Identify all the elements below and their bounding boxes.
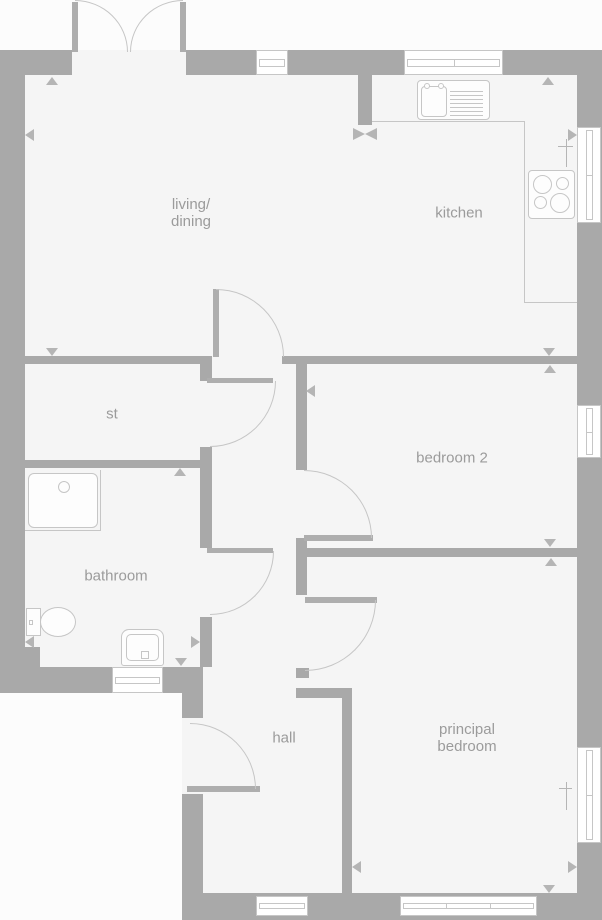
dimension-arrow-icon (544, 539, 556, 547)
wall-left (0, 50, 25, 693)
shower-screen (100, 470, 101, 531)
sink-drainer-lines (450, 91, 483, 116)
room-label-bathroom: bathroom (84, 568, 147, 585)
sink-tap (424, 83, 430, 89)
hob-burner (556, 177, 569, 190)
counter-edge (524, 121, 525, 303)
counter-edge (372, 121, 525, 122)
dimension-arrow-icon (306, 385, 315, 397)
window-icon (400, 896, 537, 916)
dimension-arrow-icon (542, 77, 554, 85)
wall-bottom (182, 893, 602, 920)
dimension-arrow-icon (543, 885, 555, 893)
dimension-arrow-icon (543, 348, 555, 356)
floorplan: living/ dining kitchen st bathroom bedro… (0, 0, 602, 920)
dimension-arrow-icon (174, 468, 186, 476)
toilet-bowl (40, 607, 76, 637)
dimension-arrow-icon (568, 129, 577, 141)
shower-drain (58, 481, 70, 493)
sink-bowl (421, 86, 447, 117)
room-label-st: st (106, 406, 118, 423)
room-label-hall: hall (272, 730, 295, 747)
label-line: bedroom (437, 738, 496, 755)
hob-burner (533, 175, 552, 194)
label-line: dining (171, 213, 211, 230)
hob-burner (550, 193, 570, 213)
dimension-arrow-icon (25, 636, 34, 648)
room-label-living-dining: living/ dining (171, 196, 211, 230)
dimension-arrow-icon (568, 861, 577, 873)
wall-principal-top (296, 688, 352, 698)
window-icon (256, 896, 308, 916)
toilet-button (29, 620, 33, 625)
wall-hallcol-left-c (200, 617, 212, 667)
wall-bedroom-divider (296, 548, 577, 557)
dimension-arrow-icon (352, 861, 361, 873)
window-icon (577, 405, 601, 458)
room-label-principal-bedroom: principal bedroom (437, 721, 496, 755)
tap-cross-icon (558, 139, 574, 169)
dimension-arrow-icon (46, 348, 58, 356)
door-swing-arc (130, 0, 183, 52)
wall-bedroom2-left-a (296, 364, 307, 470)
window-icon (112, 667, 163, 693)
window-icon (404, 50, 503, 75)
wall-bathroom-corner (25, 647, 40, 667)
wall-hallcol-left-b (200, 447, 212, 548)
dimension-arrow-icon (25, 129, 34, 141)
window-icon (577, 127, 601, 223)
dimension-arrow-icon (545, 558, 557, 566)
dimension-arrow-icon (191, 636, 200, 648)
window-icon (577, 747, 601, 843)
hob-burner (534, 196, 547, 209)
shower-screen (25, 530, 101, 531)
dimension-arrow-icon (46, 77, 58, 85)
label-line: principal (437, 721, 496, 738)
counter-edge (524, 302, 577, 303)
room-label-kitchen: kitchen (435, 205, 483, 222)
dimension-arrow-icon (365, 128, 377, 140)
wall-kitchen-bottom (282, 356, 577, 364)
room-label-bedroom2: bedroom 2 (416, 450, 488, 467)
wall-st-bottom (25, 460, 200, 468)
tap-cross-icon (558, 782, 574, 812)
outside-area (0, 693, 182, 920)
french-door-threshold (72, 50, 186, 75)
dimension-arrow-icon (353, 128, 365, 140)
sink-tap (438, 83, 444, 89)
wall-bedroom2-left-b (296, 538, 307, 595)
door-swing-arc (75, 0, 128, 52)
dimension-arrow-icon (544, 365, 556, 373)
wall-living-bottom (25, 356, 211, 364)
wall-kitchen-pillar (358, 75, 372, 125)
basin-tap (141, 651, 149, 659)
label-line: living/ (171, 196, 211, 213)
wall-bathroom-bottom (0, 667, 203, 693)
wall-principal-left (342, 698, 352, 893)
window-icon (256, 50, 288, 75)
dimension-arrow-icon (175, 658, 187, 666)
